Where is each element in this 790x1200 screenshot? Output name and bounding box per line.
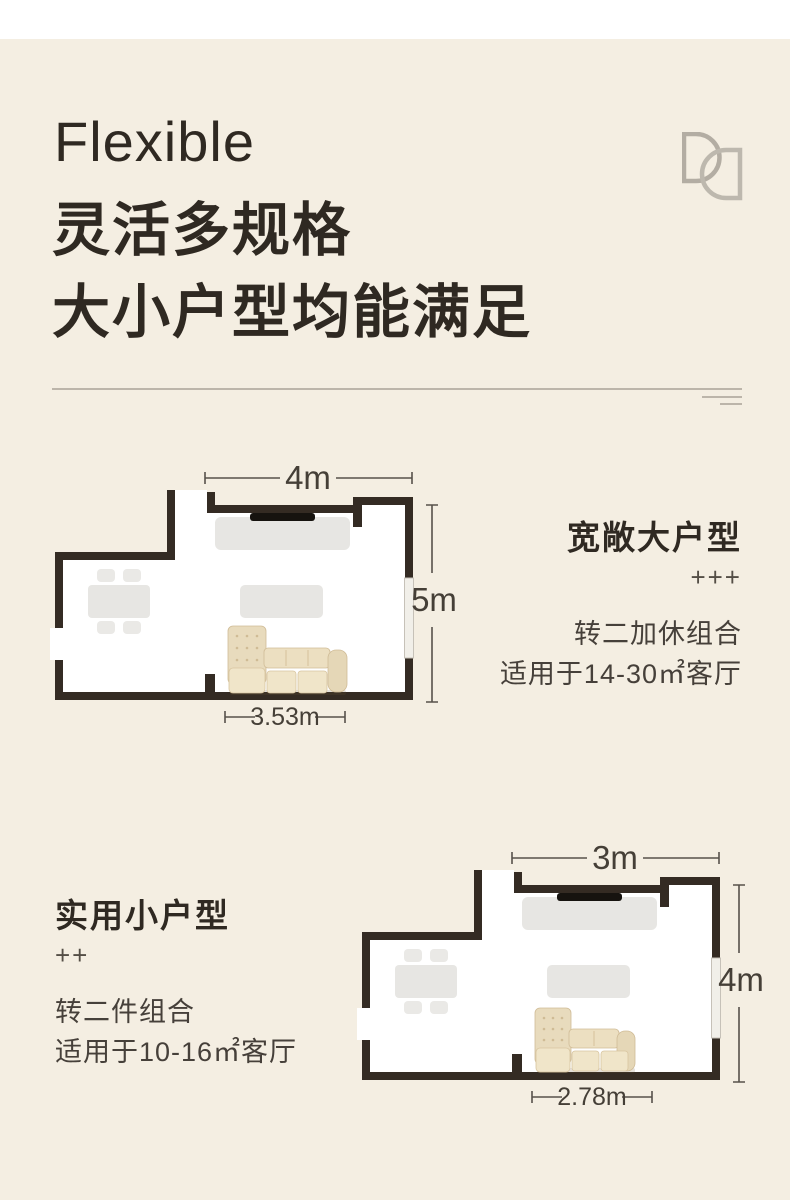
dimension-width: 3m [512, 839, 719, 876]
sofa-seat [572, 1051, 599, 1071]
sofa-seat [229, 668, 265, 693]
door-jamb [353, 505, 362, 527]
wall-segment [405, 497, 413, 578]
dining-chair [430, 949, 448, 962]
plan2-description: 实用小户型 ++ 转二件组合 适用于10-16㎡客厅 [55, 897, 297, 1068]
wall-segment [514, 885, 662, 893]
dim-height-label: 4m [718, 961, 764, 998]
section-divider [52, 388, 742, 390]
plan2-suitable-area: 适用于10-16㎡客厅 [55, 1036, 297, 1068]
divider-accent-line-2 [720, 403, 742, 405]
dim-width-label: 3m [592, 839, 638, 876]
dim-width-label: 4m [285, 459, 331, 496]
dining-chair [97, 569, 115, 582]
dining-chair [404, 1001, 422, 1014]
plan1-suitable-area: 适用于14-30㎡客厅 [500, 658, 742, 690]
page-title-en: Flexible [54, 114, 255, 170]
dimension-width: 4m [205, 459, 412, 496]
wall-segment [55, 552, 63, 628]
wall-segment [205, 674, 215, 692]
coffee-table [547, 965, 630, 998]
dim-sofa-label: 3.53m [250, 703, 319, 731]
sofa-back-cushions [264, 648, 330, 668]
door-jamb [660, 885, 669, 907]
dimension-height: 5m [411, 505, 457, 702]
wall-segment [362, 932, 482, 940]
dining-table [88, 585, 150, 618]
sofa-seat [536, 1048, 570, 1072]
page-title-zh-line2: 大小户型均能满足 [52, 284, 532, 342]
wall-segment [712, 1038, 720, 1080]
product-infographic-page: Flexible 灵活多规格 大小户型均能满足 [0, 0, 790, 1200]
dining-chair [404, 949, 422, 962]
dimension-height: 4m [718, 885, 764, 1082]
dimension-sofa: 3.53m [225, 703, 345, 731]
wall-segment [512, 1054, 522, 1072]
sofa-seat [267, 671, 296, 693]
plan2-combo: 转二件组合 [55, 996, 297, 1028]
page-title-zh-line1: 灵活多规格 [52, 202, 352, 260]
overlapping-dd-logo-icon [682, 132, 744, 202]
floorplan-large-apartment: 4m 5m 3.53m [50, 455, 490, 747]
plan1-description: 宽敞大户型 +++ 转二加休组合 适用于14-30㎡客厅 [500, 519, 742, 690]
door-opening [357, 1008, 371, 1040]
wall-segment [353, 497, 413, 505]
plan2-name: 实用小户型 [55, 897, 297, 935]
wall-segment [660, 877, 720, 885]
wall-segment [362, 932, 370, 1008]
divider-accent-line-1 [702, 396, 742, 398]
wall-segment [474, 870, 482, 940]
plan1-name: 宽敞大户型 [500, 519, 742, 557]
coffee-table [240, 585, 323, 618]
wall-segment [55, 552, 175, 560]
plan2-rating: ++ [55, 941, 297, 970]
plan1-rating: +++ [500, 563, 742, 592]
dining-table [395, 965, 457, 998]
tv [250, 513, 315, 521]
dining-chair [430, 1001, 448, 1014]
wall-segment [362, 1072, 720, 1080]
dimension-sofa: 2.78m [532, 1083, 652, 1111]
dining-chair [97, 621, 115, 634]
dining-chair [123, 569, 141, 582]
dining-chair [123, 621, 141, 634]
top-white-band [0, 0, 790, 39]
floorplan-small-apartment: 3m 4m 2.78m [357, 835, 790, 1127]
tv-console [215, 517, 350, 550]
sofa-armrest [328, 650, 347, 692]
wall-segment [207, 505, 355, 513]
tv [557, 893, 622, 901]
wall-segment [167, 490, 175, 560]
wall-segment [712, 877, 720, 958]
sofa-seat [601, 1051, 628, 1071]
dim-height-label: 5m [411, 581, 457, 618]
plan1-combo: 转二加休组合 [500, 618, 742, 650]
tv-console [522, 897, 657, 930]
wall-segment [405, 658, 413, 700]
dim-sofa-label: 2.78m [557, 1083, 626, 1111]
sofa-seat [298, 671, 327, 693]
door-opening [50, 628, 64, 660]
